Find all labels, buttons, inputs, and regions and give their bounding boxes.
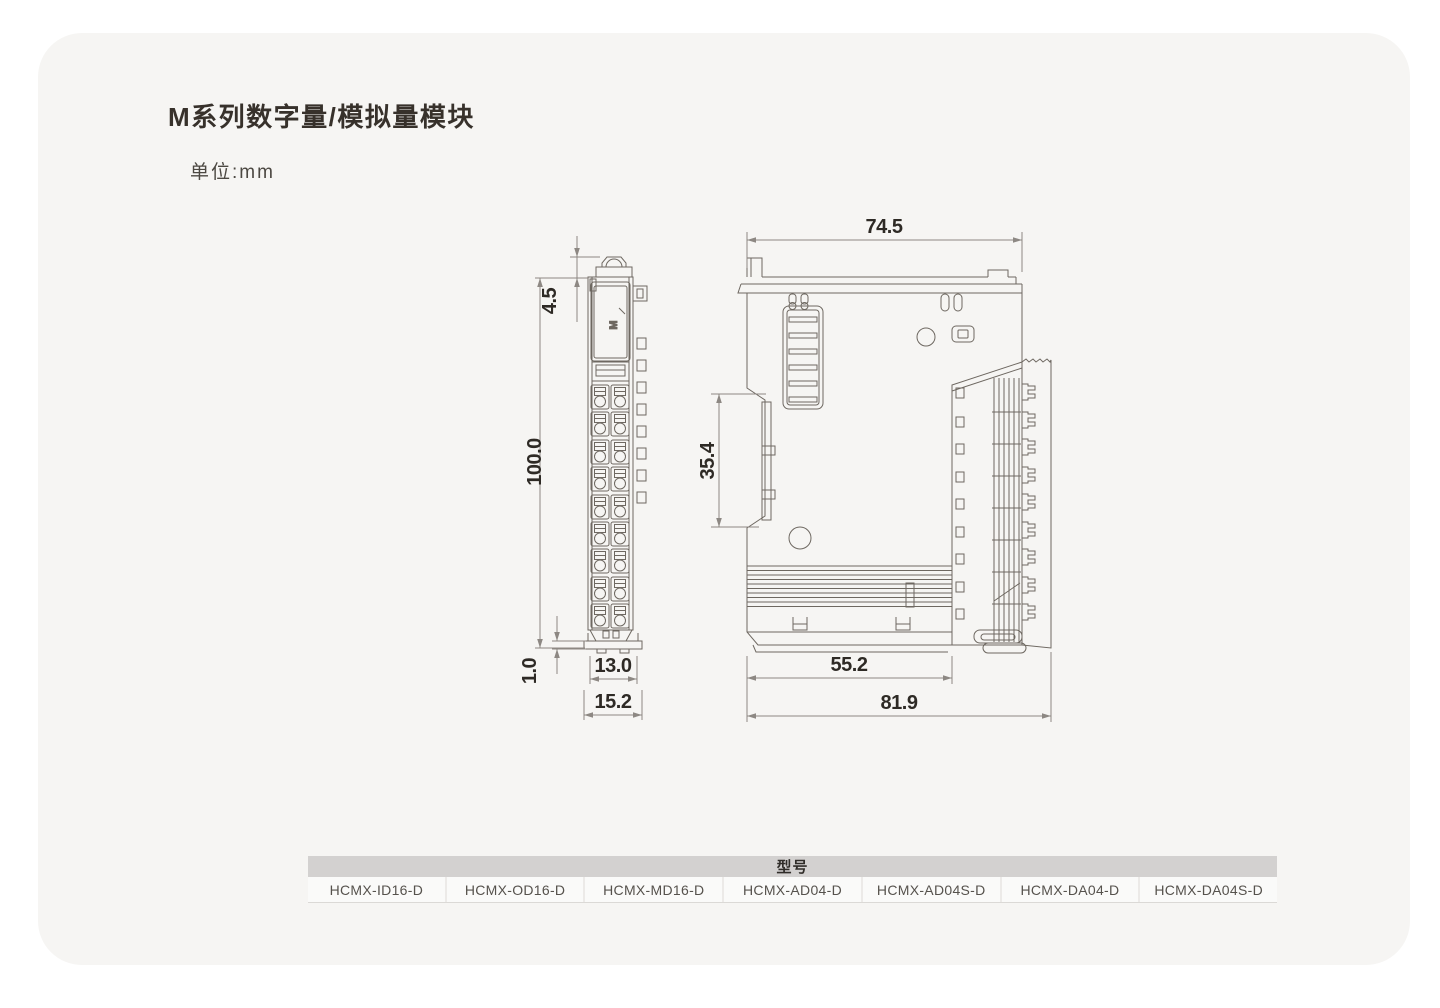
model-cell: HCMX-OD16-D [447, 877, 586, 902]
dim-front-total-width: 15.2 [595, 691, 632, 713]
dimension-drawing: M [500, 210, 1070, 730]
page-title: M系列数字量/模拟量模块 [168, 97, 475, 134]
dim-front-body-width: 13.0 [595, 655, 632, 677]
dim-side-din-rail: 35.4 [697, 441, 719, 479]
front-view-drawing: M [584, 257, 647, 653]
side-view-drawing [738, 258, 1051, 653]
dim-front-foot: 1.0 [519, 657, 541, 684]
unit-label: 单位:mm [190, 157, 275, 184]
content-card: M系列数字量/模拟量模块 单位:mm [38, 33, 1410, 965]
brand-mark: M [608, 320, 620, 329]
dim-side-body-depth: 55.2 [831, 654, 868, 676]
model-cell: HCMX-MD16-D [585, 877, 724, 902]
model-table: 型号 HCMX-ID16-D HCMX-OD16-D HCMX-MD16-D H… [308, 856, 1277, 903]
model-cell: HCMX-AD04-D [724, 877, 863, 902]
model-table-row: HCMX-ID16-D HCMX-OD16-D HCMX-MD16-D HCMX… [308, 877, 1277, 903]
dim-side-total-depth: 81.9 [881, 692, 918, 714]
dim-front-height: 100.0 [524, 438, 546, 486]
model-cell: HCMX-AD04S-D [863, 877, 1002, 902]
dim-front-cap-height: 4.5 [539, 287, 561, 314]
model-cell: HCMX-ID16-D [308, 877, 447, 902]
page: M系列数字量/模拟量模块 单位:mm [0, 0, 1440, 1008]
model-cell: HCMX-DA04-D [1002, 877, 1141, 902]
model-cell: HCMX-DA04S-D [1140, 877, 1277, 902]
model-table-header: 型号 [308, 856, 1277, 877]
dim-side-top-width: 74.5 [866, 216, 903, 238]
